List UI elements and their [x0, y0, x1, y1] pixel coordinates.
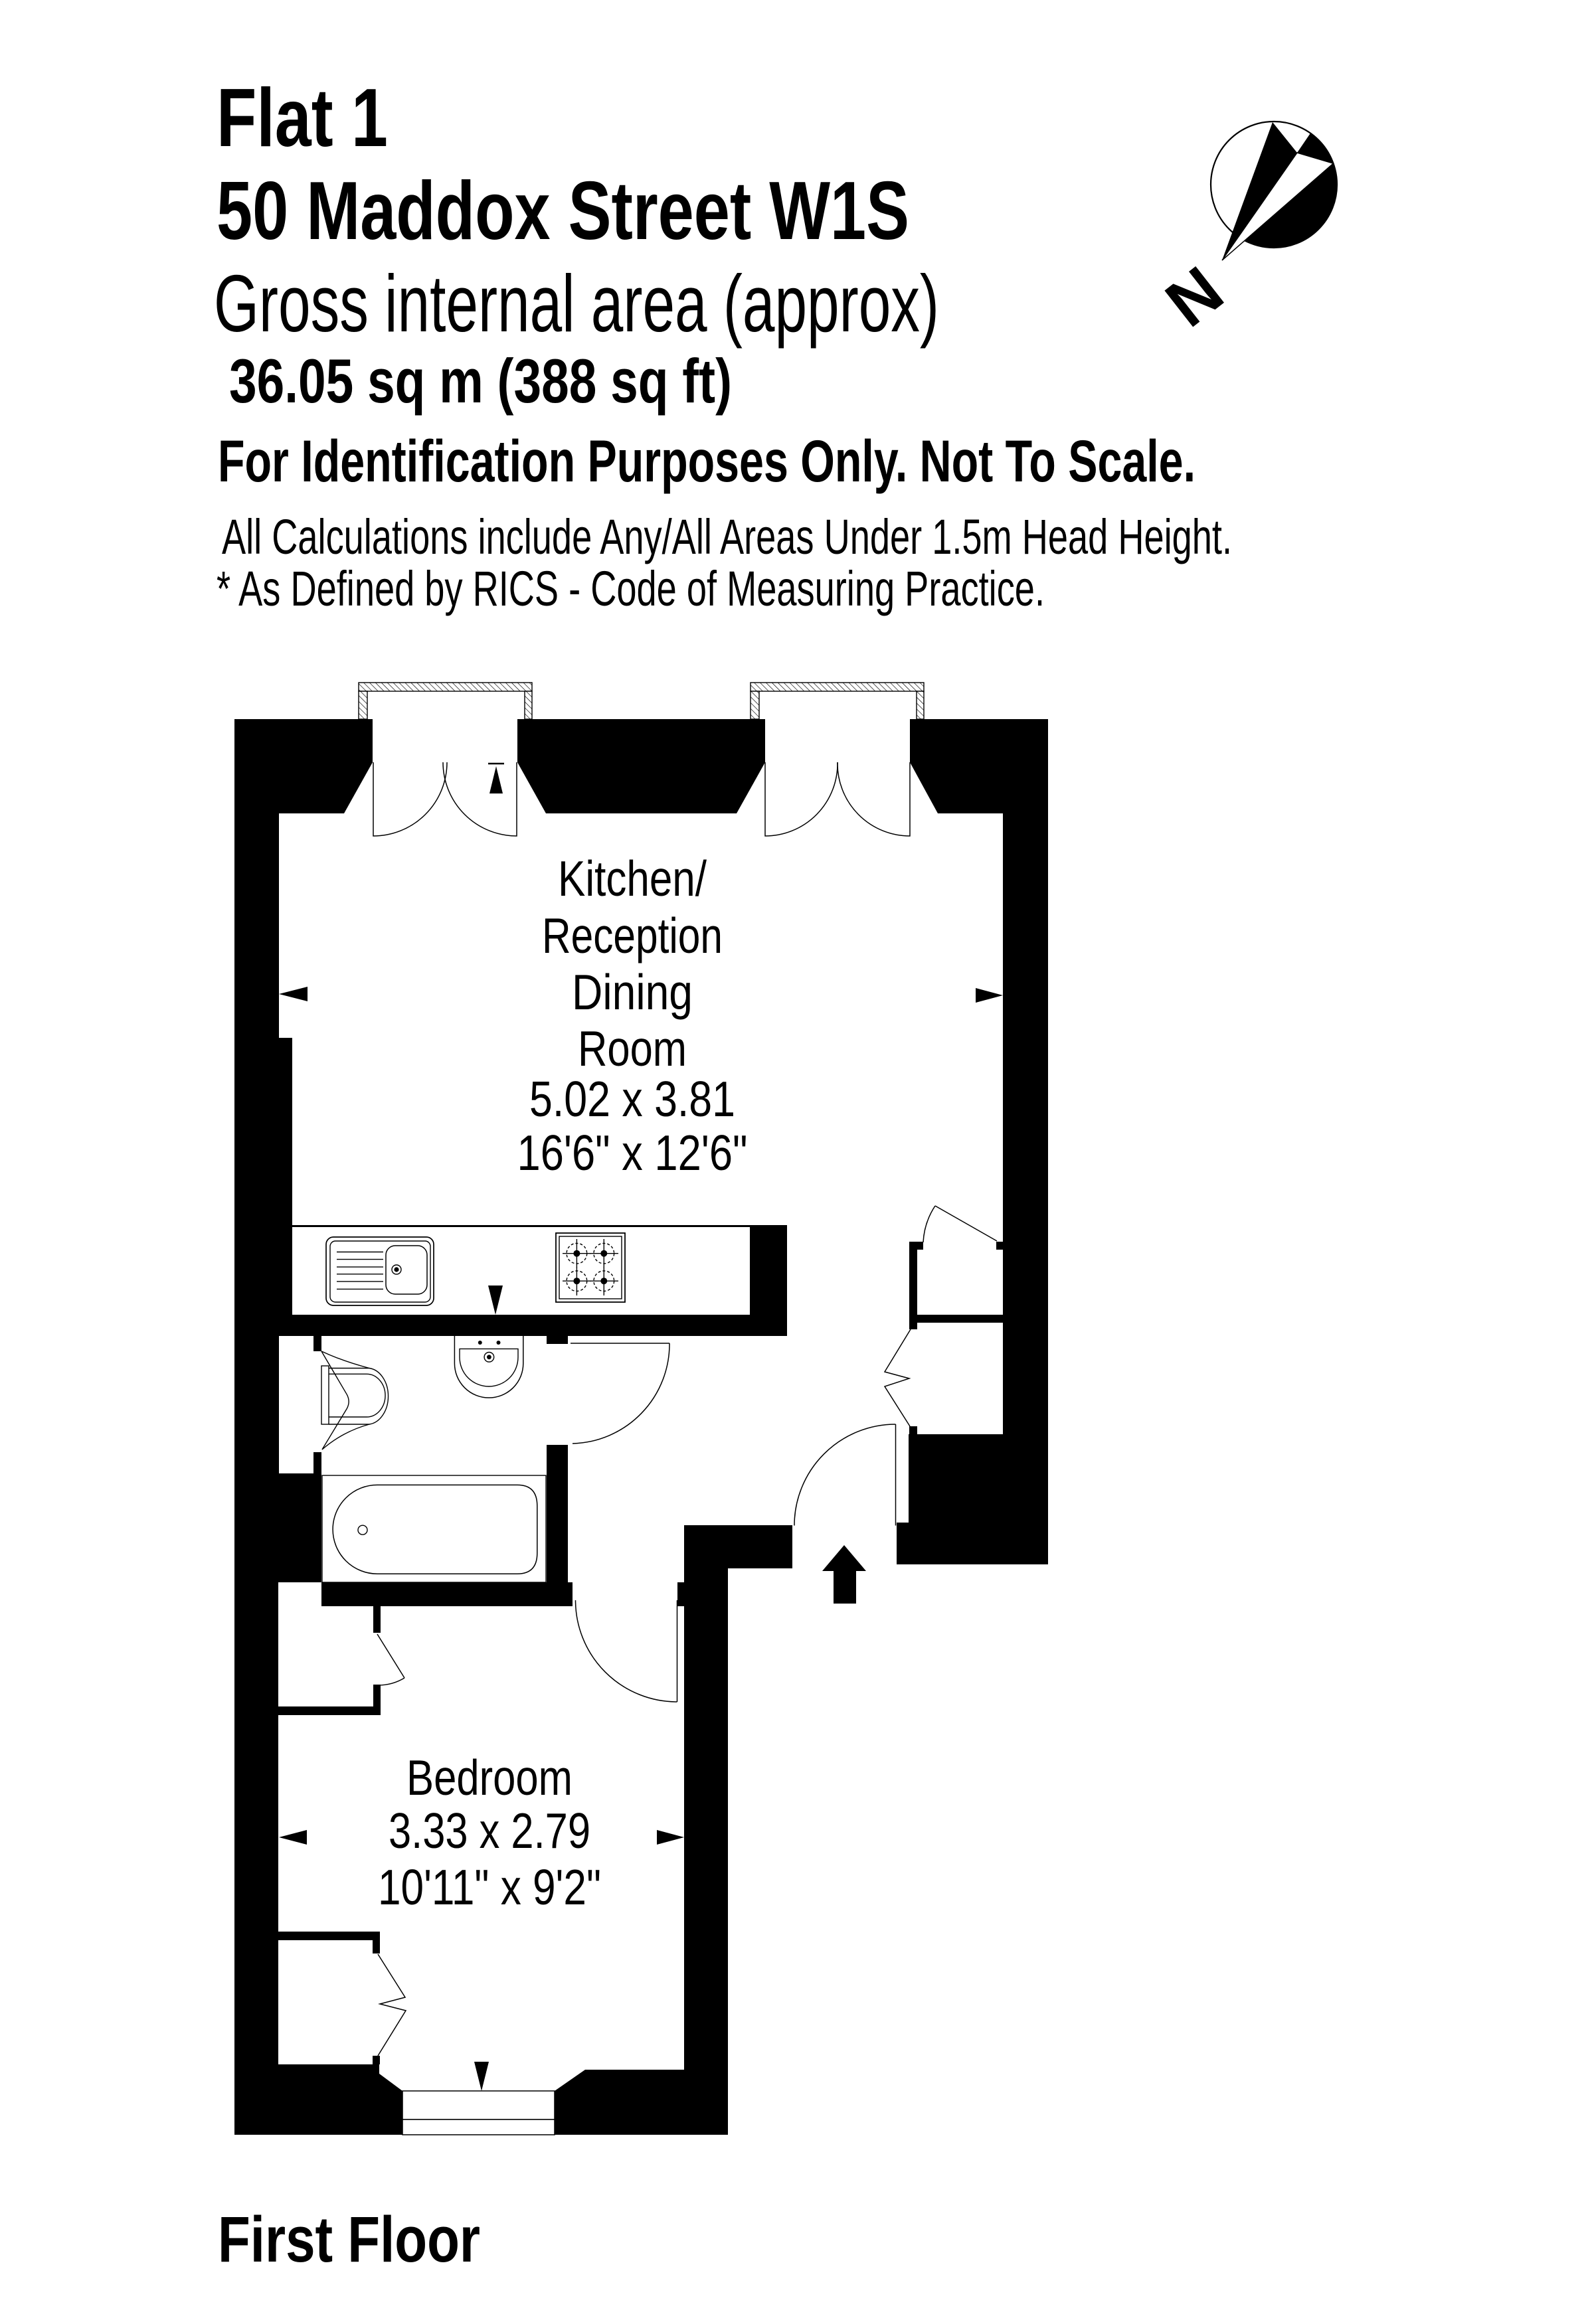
- svg-text:16'6" x 12'6": 16'6" x 12'6": [517, 1125, 748, 1181]
- svg-text:3.33 x 2.79: 3.33 x 2.79: [389, 1803, 590, 1859]
- svg-text:Kitchen/: Kitchen/: [558, 851, 707, 906]
- svg-text:5.02 x 3.81: 5.02 x 3.81: [529, 1071, 735, 1127]
- svg-text:* As Defined by RICS - Code of: * As Defined by RICS - Code of Measuring…: [217, 561, 1045, 616]
- svg-text:Room: Room: [578, 1021, 687, 1076]
- svg-text:First Floor: First Floor: [218, 2203, 480, 2276]
- svg-text:Bedroom: Bedroom: [406, 1750, 573, 1805]
- svg-text:Flat 1: Flat 1: [217, 72, 388, 164]
- svg-text:All Calculations include Any/A: All Calculations include Any/All Areas U…: [222, 509, 1232, 564]
- svg-text:50 Maddox Street W1S: 50 Maddox Street W1S: [217, 165, 909, 257]
- svg-text:For Identification Purposes On: For Identification Purposes Only. Not To…: [218, 428, 1195, 494]
- svg-text:Gross internal area (approx): Gross internal area (approx): [214, 258, 939, 349]
- svg-text:Reception: Reception: [542, 908, 723, 963]
- svg-text:Dining: Dining: [572, 964, 693, 1020]
- svg-text:36.05 sq m (388 sq ft): 36.05 sq m (388 sq ft): [229, 346, 732, 416]
- svg-text:10'11" x 9'2": 10'11" x 9'2": [378, 1859, 601, 1915]
